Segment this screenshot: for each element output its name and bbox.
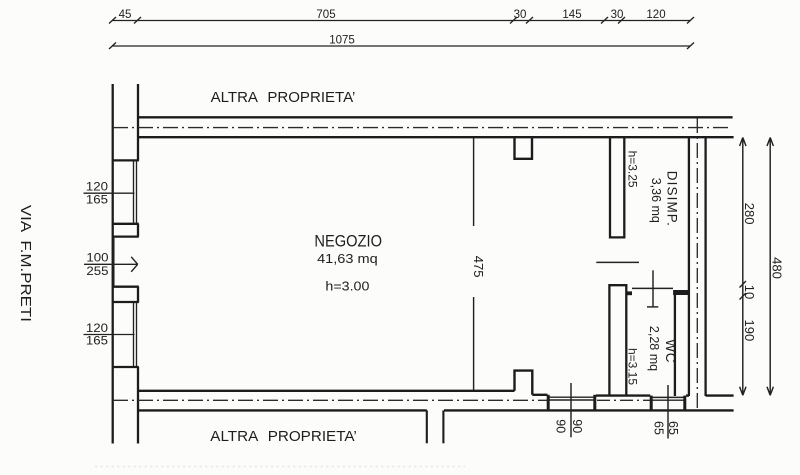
svg-text:65: 65 bbox=[666, 421, 680, 435]
svg-text:NEGOZIO: NEGOZIO bbox=[314, 231, 382, 250]
svg-text:VIA F.M.PRETI: VIA F.M.PRETI bbox=[17, 205, 34, 322]
svg-text:100: 100 bbox=[86, 252, 108, 264]
svg-text:705: 705 bbox=[316, 9, 335, 21]
svg-text:3,36 mq: 3,36 mq bbox=[649, 178, 663, 223]
svg-text:165: 165 bbox=[86, 336, 108, 348]
svg-text:ALTRA PROPRIETA’: ALTRA PROPRIETA’ bbox=[210, 428, 356, 445]
svg-text:WC: WC bbox=[663, 339, 678, 363]
svg-text:10: 10 bbox=[742, 285, 757, 299]
svg-text:480: 480 bbox=[769, 257, 784, 279]
svg-text:190: 190 bbox=[742, 320, 757, 342]
svg-text:2,28 mq: 2,28 mq bbox=[647, 326, 661, 371]
svg-text:h=3.25: h=3.25 bbox=[626, 151, 640, 188]
svg-text:90: 90 bbox=[553, 419, 567, 433]
svg-text:30: 30 bbox=[514, 9, 527, 21]
svg-text:45: 45 bbox=[119, 9, 132, 21]
svg-text:120: 120 bbox=[86, 323, 108, 335]
svg-text:65: 65 bbox=[651, 421, 665, 435]
svg-text:145: 145 bbox=[562, 9, 581, 21]
svg-text:280: 280 bbox=[742, 203, 757, 225]
svg-text:255: 255 bbox=[86, 266, 108, 278]
svg-text:120: 120 bbox=[646, 9, 665, 21]
svg-text:h=3.00: h=3.00 bbox=[325, 278, 369, 293]
svg-text:165: 165 bbox=[86, 194, 108, 206]
svg-text:DISIMP.: DISIMP. bbox=[664, 171, 679, 227]
svg-text:90: 90 bbox=[570, 419, 584, 433]
svg-text:30: 30 bbox=[611, 9, 624, 21]
svg-text:ALTRA PROPRIETA’: ALTRA PROPRIETA’ bbox=[211, 89, 356, 106]
svg-text:1075: 1075 bbox=[329, 35, 355, 47]
svg-text:h=3.15: h=3.15 bbox=[626, 348, 640, 385]
svg-text:120: 120 bbox=[86, 181, 108, 193]
svg-text:41,63 mq: 41,63 mq bbox=[317, 251, 378, 266]
svg-text:475: 475 bbox=[471, 256, 486, 278]
